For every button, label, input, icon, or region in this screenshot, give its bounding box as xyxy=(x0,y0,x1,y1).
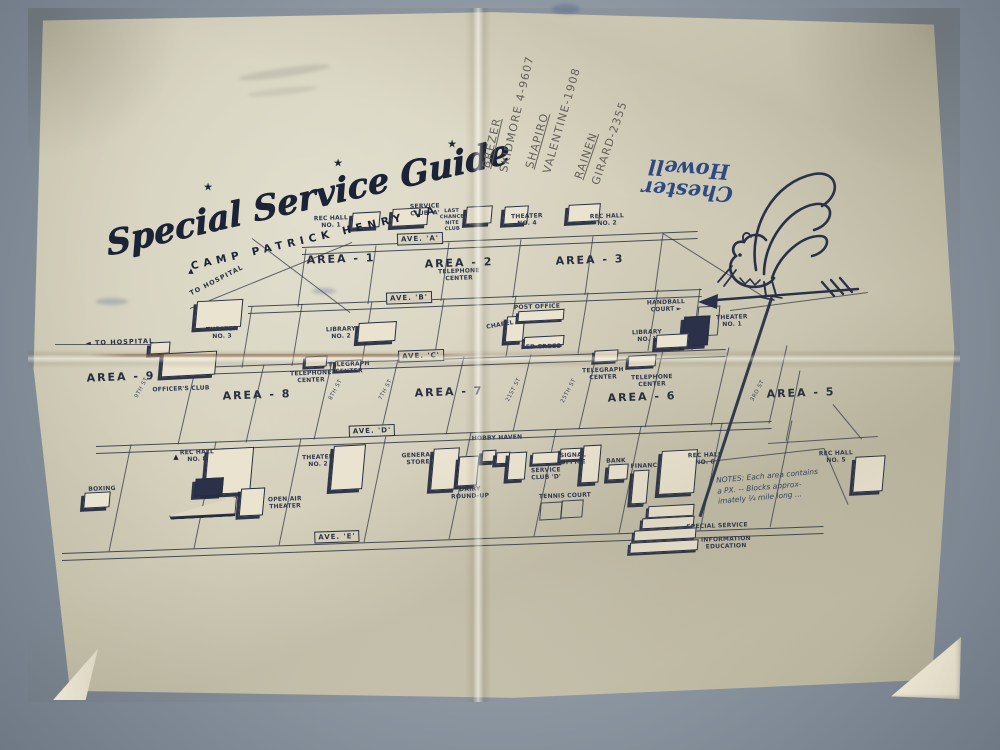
map-label: THEATER NO. 3 xyxy=(206,325,238,340)
map-label: AVE. 'B' xyxy=(386,291,432,305)
map-label: SIGNAL OFFICE xyxy=(560,451,587,466)
map-label: ▲ xyxy=(188,267,193,275)
building xyxy=(304,355,327,367)
map-label: TELEGRAPH CENTER xyxy=(582,366,624,382)
map-label: REC HALL NO. 6 xyxy=(688,451,723,467)
building xyxy=(630,470,649,505)
photo-of-folded-map: Special Service Guide CAMP PATRICK HENRY… xyxy=(0,0,1000,750)
building xyxy=(465,205,493,224)
map-label: OPEN AIR THEATER xyxy=(268,495,302,511)
map-label: SERVICE CLUB 'A' xyxy=(410,202,440,217)
street-line xyxy=(786,370,801,441)
map-label: TELEGRAPH CENTER xyxy=(328,360,370,376)
map-label: REC HALL NO. 2 xyxy=(590,212,625,228)
pencil-smudge xyxy=(238,62,330,84)
building xyxy=(627,354,656,367)
street-line xyxy=(178,366,197,444)
street-line xyxy=(246,364,265,442)
rooster-icon xyxy=(718,174,835,300)
map-label: HANDBALL COURT ► xyxy=(647,298,686,314)
map-label: 7TH ST xyxy=(378,378,394,401)
map-label: FINANCE xyxy=(630,462,661,470)
building xyxy=(852,455,885,493)
building xyxy=(607,463,629,480)
street-line xyxy=(833,404,863,440)
map-label: INFORMATION EDUCATION xyxy=(701,535,751,551)
map-label: SERVICE CLUB 'D' xyxy=(531,466,561,481)
street-line xyxy=(769,345,788,423)
building xyxy=(161,351,217,378)
map-label: OFFICER'S CLUB xyxy=(152,384,209,393)
street-line xyxy=(579,352,598,429)
map-label: HOBBY HAVEN xyxy=(472,434,523,443)
map-label: LAST CHANCE NITE CLUB xyxy=(439,208,464,233)
building xyxy=(560,499,584,518)
building xyxy=(357,321,397,343)
street-line xyxy=(711,347,730,425)
map-label: DAIRY ROUND-UP xyxy=(451,485,490,501)
rooster-weathervane-drawing xyxy=(690,150,875,325)
pencil-contact-rainen: RAINEN GIRARD-2355 xyxy=(572,93,630,186)
building xyxy=(507,452,528,481)
street-line xyxy=(292,304,303,365)
map-label: BANK xyxy=(606,457,626,465)
map-label: REC HALL NO. 1 xyxy=(314,214,349,230)
street-line xyxy=(364,435,387,542)
building xyxy=(629,539,698,554)
map-label: AREA - 5 xyxy=(766,385,835,401)
building xyxy=(457,455,480,486)
map-label: TELEPHONE CENTER xyxy=(290,369,332,385)
map-label: ◄ TO HOSPITAL xyxy=(86,338,155,348)
map-label: THEATER NO. 4 xyxy=(511,212,543,227)
street-line xyxy=(279,438,302,545)
map-label: AVE. 'D' xyxy=(349,424,396,438)
building xyxy=(194,477,224,496)
street-line xyxy=(534,429,557,536)
building xyxy=(430,447,460,490)
map-label: RED CROSS xyxy=(521,343,561,352)
map-label: AREA - 7 xyxy=(414,384,483,400)
street-line xyxy=(655,233,664,291)
map-content: Special Service Guide CAMP PATRICK HENRY… xyxy=(0,0,1000,750)
map-label: ★ xyxy=(447,137,457,150)
weathervane-arrow-icon xyxy=(698,278,858,309)
street-line xyxy=(513,239,522,297)
map-label: TELEPHONE CENTER xyxy=(631,373,673,389)
map-label: AVE. 'E' xyxy=(314,530,360,544)
map-label: ★ xyxy=(203,180,213,193)
street-line xyxy=(109,444,132,551)
building xyxy=(239,487,266,516)
map-label: REC HALL NO. 8 xyxy=(180,448,215,464)
map-label: GENERAL STORE xyxy=(401,451,434,467)
map-label: BOXING xyxy=(88,485,116,493)
map-label: LIBRARY NO. 1 xyxy=(632,328,662,343)
map-label: ▲ xyxy=(173,453,178,461)
map-label: AVE. 'C' xyxy=(398,349,444,363)
map-label: 3RD ST xyxy=(750,379,767,403)
map-label: ★ xyxy=(333,156,343,169)
ink-smudge xyxy=(552,4,580,14)
ink-smudge xyxy=(96,298,128,305)
map-label: AREA - 6 xyxy=(607,389,676,405)
building xyxy=(83,491,111,508)
map-label: AREA - 2 xyxy=(424,255,493,271)
street-line xyxy=(96,421,772,447)
pencil-contact-shapiro: SHAPIRO VALENTINE-1908 xyxy=(523,61,583,175)
map-label: LIBRARY NO. 2 xyxy=(326,325,356,340)
building xyxy=(593,349,618,362)
map-label: AVE. 'A' xyxy=(397,232,443,246)
building xyxy=(330,444,366,491)
street-line xyxy=(242,306,253,367)
building xyxy=(481,450,496,463)
map-label: THEATER NO. 2 xyxy=(302,453,334,468)
map-label: AREA - 1 xyxy=(306,251,375,267)
map-label: 25TH ST xyxy=(560,378,578,405)
street-line xyxy=(768,436,878,444)
map-label: AREA - 3 xyxy=(555,252,624,268)
map-label: REC HALL NO. 5 xyxy=(819,449,854,465)
map-label: NOTES: Each area contains a PX. -- Block… xyxy=(716,467,820,507)
map-label: AREA - 8 xyxy=(222,387,291,403)
pencil-smudge xyxy=(248,84,318,98)
